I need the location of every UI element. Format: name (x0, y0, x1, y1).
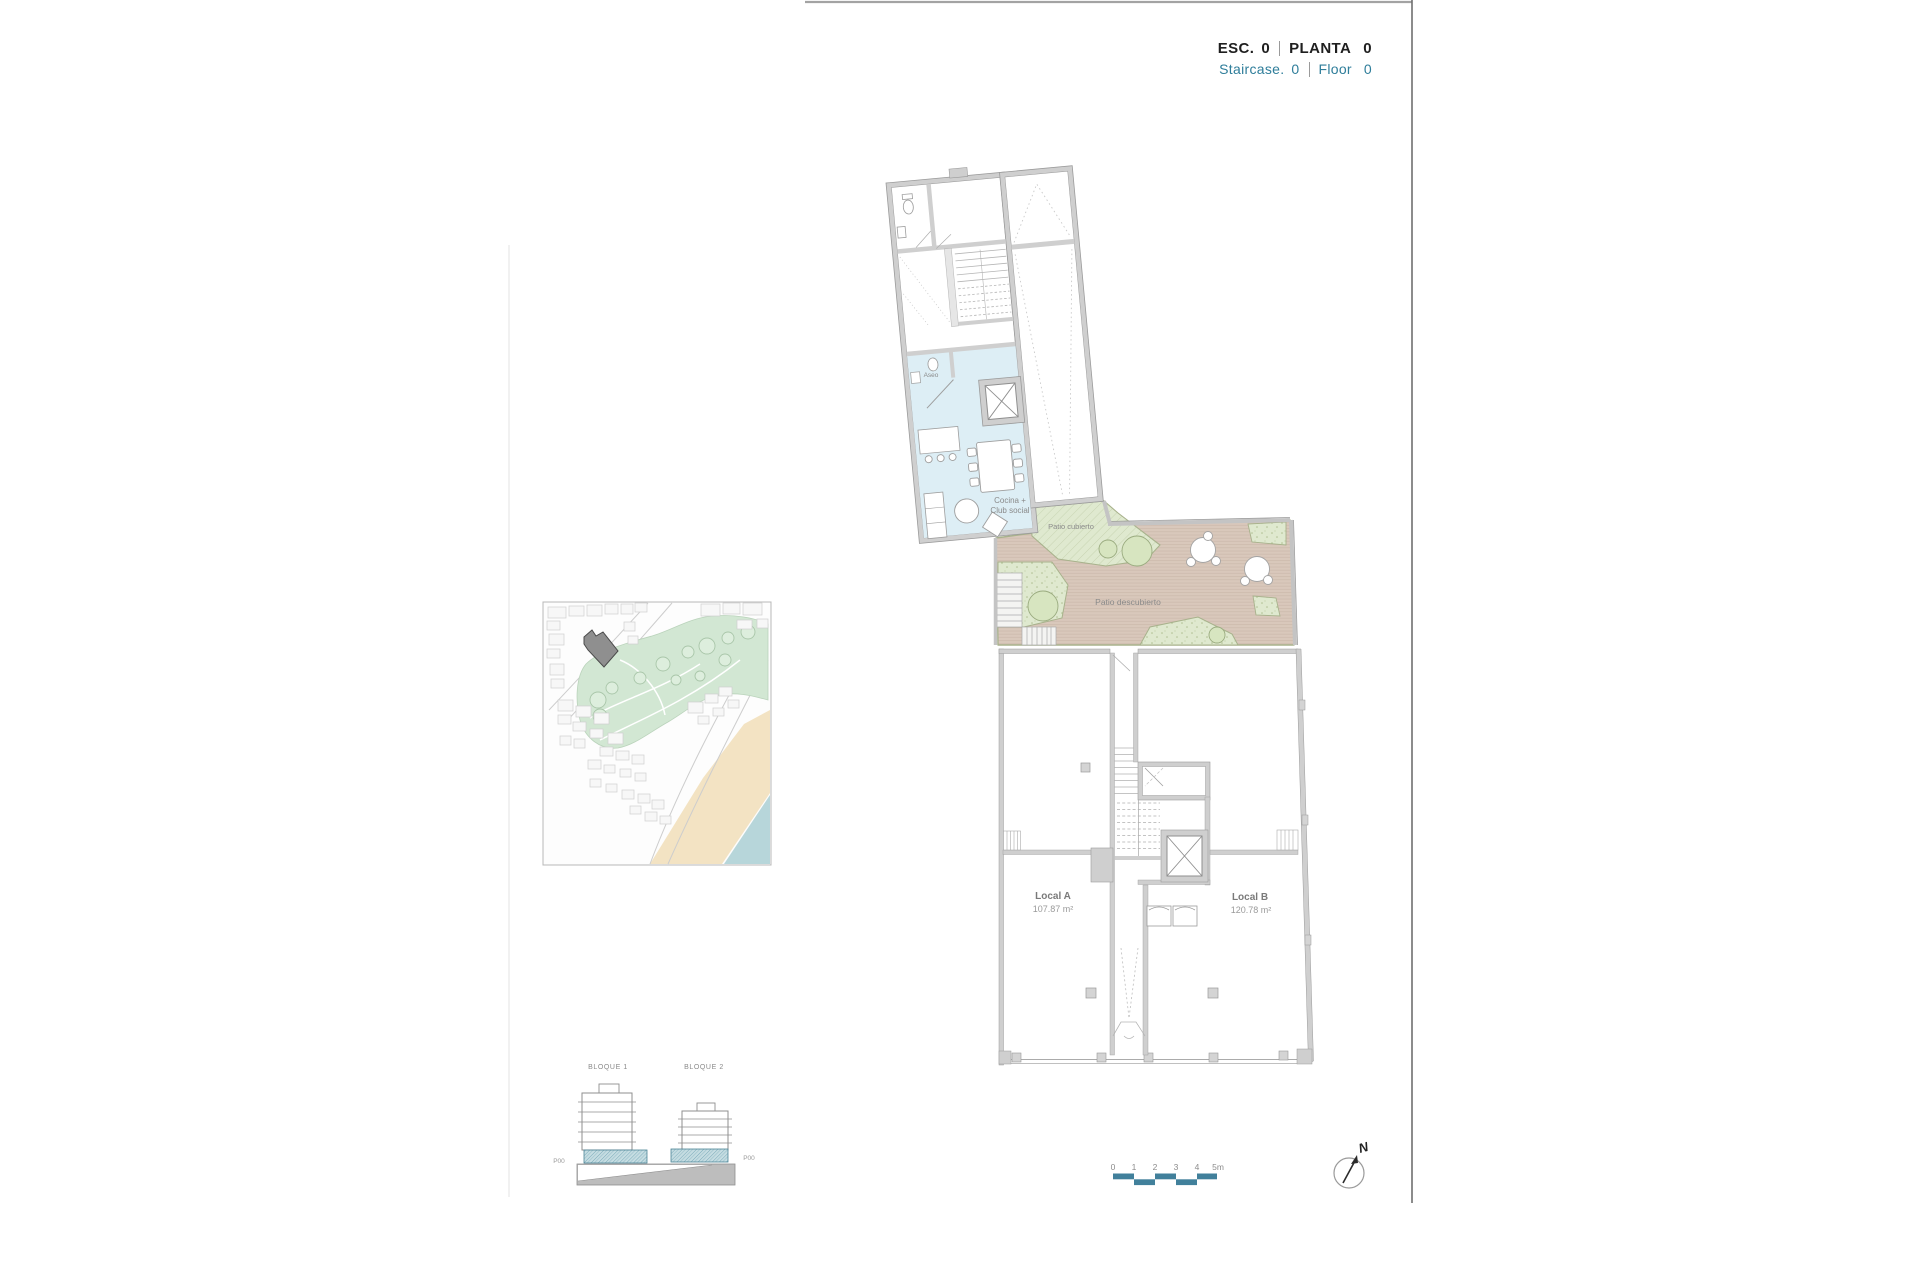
esc-label: ESC. (1218, 40, 1255, 57)
compass-needle-head (1351, 1155, 1358, 1164)
patio-descubierto-label: Patio descubierto (1095, 597, 1161, 607)
wall-right-slanted (1296, 649, 1314, 1063)
cocina-label-line1: Cocina + (994, 496, 1026, 505)
local-b-name: Local B (1232, 892, 1268, 903)
scale-tick-2: 2 (1153, 1162, 1158, 1172)
tower-2 (678, 1103, 732, 1150)
upper-building (885, 158, 1105, 544)
mid-wall-left (1003, 850, 1093, 855)
staircase-value: 0 (1291, 61, 1299, 77)
tower-1 (578, 1084, 636, 1150)
storefront-piers (1012, 1051, 1288, 1062)
local-b-area: 120.78 m² (1231, 905, 1272, 915)
local-a-area: 107.87 m² (1033, 904, 1074, 914)
sheet-header: ESC. 0 PLANTA 0 Staircase. 0 Floor 0 (1218, 40, 1372, 77)
block2-label: BLOQUE 2 (684, 1064, 724, 1071)
floor-label: Floor (1319, 61, 1352, 77)
floor-value: 0 (1364, 61, 1372, 77)
lower-building (999, 649, 1314, 1065)
header-row-es: ESC. 0 PLANTA 0 (1218, 40, 1372, 57)
corner-pier (999, 1051, 1011, 1064)
p00-left-label: P00 (553, 1158, 565, 1165)
cocina-label-line2: Club social (990, 506, 1029, 515)
corner-pier (1297, 1049, 1312, 1064)
staircase-label: Staircase. (1219, 61, 1284, 77)
garden-pocket (1253, 596, 1280, 616)
mid-wall-right (1210, 850, 1298, 855)
entry-ramp (1113, 948, 1145, 1039)
chimney (949, 167, 968, 178)
dining-table (976, 440, 1014, 493)
local-a-name: Local A (1035, 891, 1071, 902)
garden-top-right (1248, 522, 1286, 545)
local-b-stair (1277, 830, 1298, 850)
scale-bar: 0 1 2 3 4 5m (1111, 1162, 1224, 1185)
core-closets (1147, 906, 1197, 926)
wall-top (999, 649, 1110, 654)
stair-wall (1115, 856, 1161, 860)
scale-tick-5m: 5m (1212, 1162, 1224, 1172)
corridor-wall (1134, 653, 1139, 762)
scale-tick-1: 1 (1132, 1162, 1137, 1172)
block1-label: BLOQUE 1 (588, 1064, 628, 1071)
scale-tick-0: 0 (1111, 1162, 1116, 1172)
kitchen-counter (918, 426, 960, 454)
plan-sheet: Aseo Cocina + Club social Patio cubierto… (0, 0, 1920, 1280)
local-a-stair (1004, 831, 1021, 850)
core-elevator (1161, 830, 1208, 882)
header-divider (1309, 62, 1310, 77)
aseo-label: Aseo (924, 372, 939, 379)
planta-label: PLANTA (1289, 40, 1351, 57)
planta-value: 0 (1363, 40, 1372, 57)
patio-cubierto-label: Patio cubierto (1048, 522, 1094, 531)
scale-bar-segments (1113, 1174, 1217, 1186)
core (1115, 748, 1211, 926)
north-label: N (1357, 1139, 1371, 1156)
header-row-en: Staircase. 0 Floor 0 (1219, 61, 1372, 77)
esc-value: 0 (1261, 40, 1270, 57)
upper-elevator (979, 376, 1025, 426)
floor-highlight-band-1 (584, 1150, 647, 1163)
p00-right-label: P00 (743, 1155, 755, 1162)
north-compass: N (1334, 1139, 1370, 1188)
section-elevation: BLOQUE 1 BLOQUE 2 P00 P00 (553, 1064, 755, 1185)
door-leaf (1113, 655, 1130, 671)
scale-tick-4: 4 (1195, 1162, 1200, 1172)
location-map (543, 602, 771, 865)
patio-descubierto (996, 501, 1298, 645)
sofa (924, 492, 947, 539)
ground-base (577, 1164, 735, 1185)
scale-tick-3: 3 (1174, 1162, 1179, 1172)
mid-pier (1091, 848, 1113, 882)
wall-left (999, 649, 1004, 1065)
header-divider (1279, 41, 1280, 56)
floor-highlight-band-2 (671, 1149, 728, 1162)
wall-top (1138, 649, 1298, 654)
floor-plan: Aseo Cocina + Club social Patio cubierto… (885, 158, 1313, 1065)
